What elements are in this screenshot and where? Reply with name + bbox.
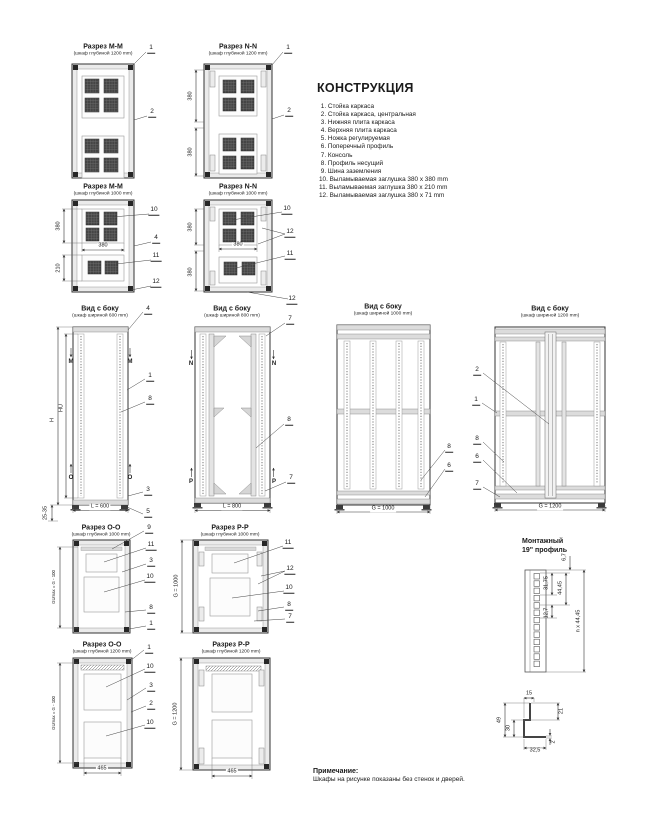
side1000-callout-6: 6 bbox=[445, 463, 453, 472]
nn1200-dim-380-bottom: 380 bbox=[188, 147, 194, 156]
oo1200-callout-10b: 10 bbox=[144, 720, 155, 729]
construction-item: 12. Выламываемая заглушка 380 x 71 mm bbox=[319, 192, 448, 200]
mm1000-callout-10: 10 bbox=[148, 207, 159, 216]
side1000-callout-8: 8 bbox=[445, 444, 453, 453]
construction-item: 11. Выламываемая заглушка 380 x 210 mm bbox=[319, 184, 448, 192]
mm1200-subtitle: (шкаф глубиной 1200 mm) bbox=[74, 53, 133, 58]
side600-marker-o-right: O bbox=[128, 475, 133, 481]
mm1000-dim-380-width: 380 bbox=[97, 243, 109, 249]
side1200-callout-6: 6 bbox=[473, 454, 481, 463]
oo1000-callout-3: 3 bbox=[147, 558, 155, 567]
side600-marker-m-right: M bbox=[128, 359, 133, 365]
construction-item: 9. Шина заземления bbox=[319, 168, 448, 176]
pp1000-callout-8: 8 bbox=[285, 602, 293, 611]
pp1000-dim-g1000: G = 1000 bbox=[174, 575, 180, 598]
side1000-dim-g1000: G = 1000 bbox=[370, 506, 396, 512]
nn1000-callout-12a: 12 bbox=[284, 229, 295, 238]
section-oo-1200-drawing bbox=[57, 650, 146, 776]
pp1200-subtitle: (шкаф глубиной 1200 mm) bbox=[202, 651, 261, 656]
oo1000-callout-8: 8 bbox=[147, 605, 155, 614]
side600-dim-h: H bbox=[50, 418, 56, 422]
construction-list: 1. Стойка каркаса 2. Стойка каркаса, цен… bbox=[319, 103, 448, 200]
side1000-title: Вид с боку bbox=[364, 304, 402, 311]
mm1200-callout-2: 2 bbox=[148, 109, 156, 118]
side600-dim-foot: 25-35 bbox=[43, 506, 49, 520]
oo1200-dim-gumax: GUmax = G - 100 bbox=[52, 696, 56, 730]
side800-marker-n-right: N bbox=[272, 361, 276, 367]
nn1200-callout-2: 2 bbox=[285, 108, 293, 117]
nn1000-dim-380-width: 380 bbox=[232, 242, 244, 248]
mm1000-callout-4: 4 bbox=[152, 235, 160, 244]
bracket-dim-49: 49 bbox=[497, 717, 503, 723]
side800-marker-n-left: N bbox=[189, 361, 193, 367]
bracket-dim-2: 2 bbox=[551, 740, 557, 743]
side1000-subtitle: (шкаф шириной 1000 mm) bbox=[354, 313, 412, 318]
construction-item: 1. Стойка каркаса bbox=[319, 103, 448, 111]
side600-marker-m-left: M bbox=[69, 359, 74, 365]
side800-marker-p-right: P bbox=[272, 479, 276, 485]
oo1000-callout-1: 1 bbox=[147, 621, 155, 630]
mm1200-callout-1: 1 bbox=[147, 45, 155, 54]
nn1000-dim-380-bottom: 380 bbox=[188, 267, 194, 276]
mm1000-callout-11: 11 bbox=[151, 253, 162, 262]
pp1000-callout-11: 11 bbox=[283, 540, 294, 549]
bracket-dim-32-5: 32,5 bbox=[528, 748, 542, 754]
side600-callout-1: 1 bbox=[146, 373, 154, 382]
side1200-callout-1: 1 bbox=[472, 397, 480, 406]
nn1200-title: Разрез N-N bbox=[219, 44, 257, 51]
oo1000-callout-10: 10 bbox=[144, 574, 155, 583]
pp1000-callout-12: 12 bbox=[284, 566, 295, 575]
side800-title: Вид с боку bbox=[213, 306, 251, 313]
side800-dim-l800: L = 800 bbox=[221, 504, 242, 510]
side600-dim-hu: HU bbox=[59, 404, 65, 412]
rail-dim-31-75: 31,75 bbox=[544, 576, 550, 590]
nn1200-subtitle: (шкаф глубиной 1200 mm) bbox=[209, 53, 268, 58]
rail-dim-12-7: 12,7 bbox=[544, 608, 550, 619]
mm1000-dim-210: 210 bbox=[56, 263, 62, 272]
pp1200-dim-g1200: G = 1200 bbox=[173, 703, 179, 726]
construction-item: 3. Нижняя плита каркаса bbox=[319, 119, 448, 127]
side600-callout-8: 8 bbox=[146, 396, 154, 405]
oo1200-callout-10a: 10 bbox=[144, 664, 155, 673]
rail-title-line1: Монтажный bbox=[522, 538, 563, 545]
side600-callout-3: 3 bbox=[144, 487, 152, 496]
mm1000-callout-12: 12 bbox=[150, 279, 161, 288]
mm1000-subtitle: (шкаф глубиной 1000 mm) bbox=[74, 193, 133, 198]
side-view-1000-drawing bbox=[335, 325, 446, 514]
pp1000-subtitle: (шкаф глубиной 1000 mm) bbox=[201, 534, 260, 539]
construction-item: 6. Поперечный профиль bbox=[319, 143, 448, 151]
oo1200-callout-3: 3 bbox=[147, 683, 155, 692]
pp1200-dim-465: 465 bbox=[226, 769, 238, 775]
construction-item: 4. Верхняя плита каркаса bbox=[319, 127, 448, 135]
nn1000-callout-12b: 12 bbox=[286, 296, 297, 305]
side1200-subtitle: (шкаф шириной 1200 mm) bbox=[521, 315, 579, 320]
side600-subtitle: (шкаф шириной 600 mm) bbox=[72, 315, 128, 320]
oo1200-callout-2: 2 bbox=[147, 701, 155, 710]
section-oo-1000-drawing bbox=[57, 531, 146, 633]
drawing-sheet: Разрез М-М (шкаф глубиной 1200 mm) Разре… bbox=[0, 0, 660, 836]
oo1200-title: Разрез О-О bbox=[83, 642, 122, 649]
section-mm-1200-drawing bbox=[72, 52, 147, 178]
pp1000-title: Разрез Р-Р bbox=[211, 525, 248, 532]
section-nn-1200-drawing bbox=[194, 52, 284, 178]
side800-callout-7a: 7 bbox=[286, 316, 294, 325]
oo1000-title: Разрез О-О bbox=[82, 525, 121, 532]
rail-title-line2: 19" профиль bbox=[522, 547, 567, 554]
construction-item: 2. Стойка каркаса, центральная bbox=[319, 111, 448, 119]
oo1200-callout-1: 1 bbox=[145, 645, 153, 654]
bracket-dim-15: 15 bbox=[524, 691, 533, 697]
side1200-callout-2: 2 bbox=[473, 367, 481, 376]
nn1000-subtitle: (шкаф глубиной 1000 mm) bbox=[209, 193, 268, 198]
note-body: Шкафы на рисунке показаны без стенок и д… bbox=[313, 777, 465, 784]
oo1000-subtitle: (шкаф глубиной 1000 mm) bbox=[72, 534, 131, 539]
oo1000-callout-11: 11 bbox=[146, 542, 157, 551]
side600-callout-4: 4 bbox=[144, 306, 152, 315]
side1200-title: Вид с боку bbox=[531, 306, 569, 313]
nn1000-dim-380-top: 380 bbox=[188, 222, 194, 231]
side600-dim-l600: L = 600 bbox=[89, 504, 110, 510]
note-title: Примечание: bbox=[313, 768, 358, 775]
pp1200-title: Разрез Р-Р bbox=[212, 642, 249, 649]
bracket-dim-21: 21 bbox=[559, 708, 565, 714]
nn1200-callout-1: 1 bbox=[284, 45, 292, 54]
side800-subtitle: (шкаф шириной 800 mm) bbox=[204, 315, 260, 320]
side800-callout-8: 8 bbox=[285, 417, 293, 426]
side1200-callout-8: 8 bbox=[473, 436, 481, 445]
side1200-callout-7: 7 bbox=[473, 481, 481, 490]
rail-dim-44-45: 44,45 bbox=[558, 581, 564, 595]
oo1200-dim-465: 465 bbox=[96, 766, 108, 772]
section-nn-1000-drawing bbox=[194, 200, 288, 299]
mm1200-title: Разрез М-М bbox=[83, 44, 123, 51]
construction-item: 10. Выламываемая заглушка 380 x 380 mm bbox=[319, 176, 448, 184]
pp1000-callout-7: 7 bbox=[286, 614, 294, 623]
side600-title: Вид с боку bbox=[81, 306, 119, 313]
side-view-1200-drawing bbox=[482, 327, 607, 512]
side600-callout-5: 5 bbox=[144, 509, 152, 518]
oo1000-callout-9: 9 bbox=[145, 525, 153, 534]
rail-dim-6-7: 6,7 bbox=[562, 553, 568, 561]
construction-item: 7. Консоль bbox=[319, 152, 448, 160]
bracket-dim-30: 30 bbox=[506, 725, 512, 731]
construction-item: 8. Профиль несущий bbox=[319, 160, 448, 168]
side1200-dim-g1200: G = 1200 bbox=[537, 504, 563, 510]
mm1000-title: Разрез М-М bbox=[83, 184, 123, 191]
side-view-600-drawing bbox=[48, 312, 145, 521]
oo1200-subtitle: (шкаф глубиной 1200 mm) bbox=[73, 651, 132, 656]
side600-marker-o-left: O bbox=[69, 475, 74, 481]
side800-callout-7b: 7 bbox=[287, 475, 295, 484]
nn1000-callout-10: 10 bbox=[281, 206, 292, 215]
construction-title: КОНСТРУКЦИЯ bbox=[317, 82, 414, 95]
nn1000-title: Разрез N-N bbox=[219, 184, 257, 191]
side800-marker-p-left: P bbox=[189, 479, 193, 485]
oo1000-dim-gumax: GUmax = G - 100 bbox=[52, 570, 56, 604]
rail-dim-nx4445: n x 44,45 bbox=[576, 610, 582, 633]
nn1200-dim-380-top: 380 bbox=[188, 91, 194, 100]
section-pp-1000-drawing bbox=[180, 540, 285, 633]
mm1000-dim-380-left: 380 bbox=[56, 221, 62, 230]
section-pp-1200-drawing bbox=[179, 658, 270, 779]
nn1000-callout-11: 11 bbox=[285, 251, 296, 260]
pp1000-callout-10: 10 bbox=[283, 585, 294, 594]
